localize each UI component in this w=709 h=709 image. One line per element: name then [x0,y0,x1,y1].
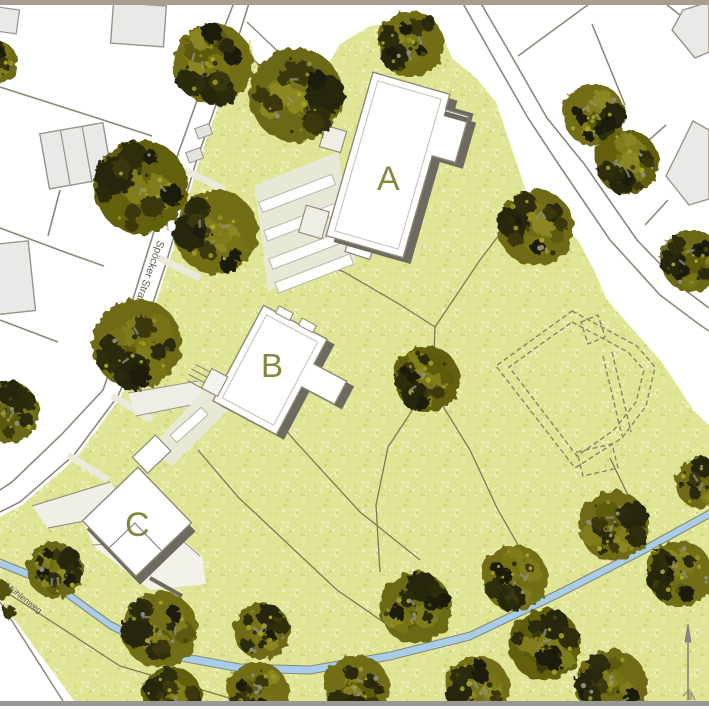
svg-text:B: B [261,347,283,384]
svg-text:A: A [377,160,400,198]
svg-text:C: C [125,506,150,544]
